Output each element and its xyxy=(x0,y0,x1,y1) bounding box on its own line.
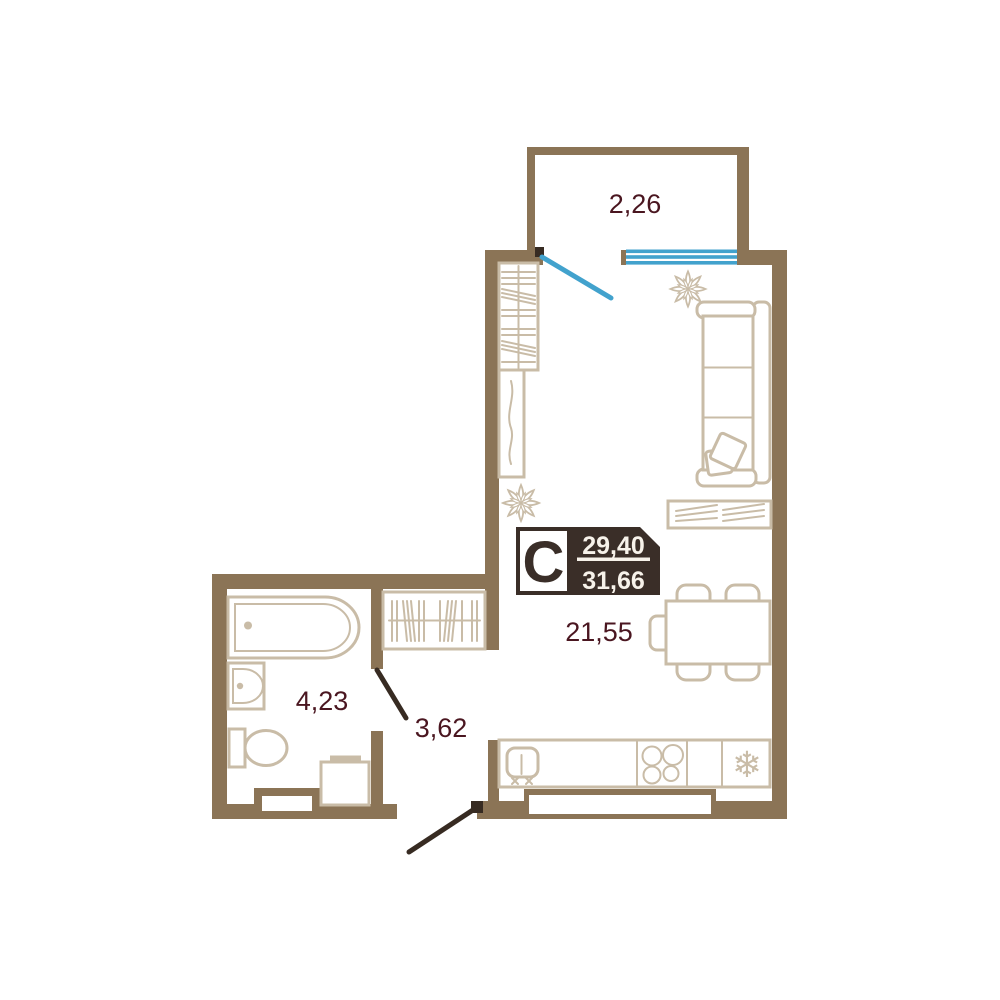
sofa xyxy=(697,302,770,486)
wardrobe-with-hangers xyxy=(499,263,538,370)
bathroom-hallway-divider-upper xyxy=(371,589,383,669)
bathroom-sink xyxy=(228,663,264,709)
living-room-area-label: 21,55 xyxy=(565,617,633,647)
bathroom-hallway-divider-lower xyxy=(371,731,383,804)
window-left-cap xyxy=(621,250,626,265)
dining-table xyxy=(666,601,770,664)
dining-set xyxy=(650,585,770,680)
unit-type-letter: С xyxy=(523,530,565,595)
bathroom-area-label: 4,23 xyxy=(296,686,349,716)
kitchen-counter-side-wall xyxy=(488,740,499,806)
toilet xyxy=(229,729,287,767)
living-area-value: 29,40 xyxy=(582,532,645,560)
floor-plan: ❄ С xyxy=(0,0,1000,1000)
kitchen-window xyxy=(529,795,711,814)
bathtub xyxy=(228,597,359,658)
bathtub-drain xyxy=(244,622,252,630)
kitchen-counter: ❄ xyxy=(499,740,770,787)
window-glazing-line xyxy=(626,255,737,259)
balcony-right-wall xyxy=(737,147,749,250)
washing-machine xyxy=(321,756,369,806)
window-glazing-line xyxy=(626,261,737,265)
snowflake-icon: ❄ xyxy=(732,745,762,786)
balcony-left-wall xyxy=(527,147,535,250)
living-room-left-wall xyxy=(485,250,499,650)
balcony-door-leaf xyxy=(542,257,611,298)
balcony-area-label: 2,26 xyxy=(609,189,662,219)
plant-icon xyxy=(503,485,539,521)
window-glazing-line xyxy=(626,250,737,254)
tv-stand xyxy=(668,501,771,528)
living-room-right-wall xyxy=(772,250,787,819)
toilet-tank xyxy=(229,729,245,767)
wardrobe-sliding-door xyxy=(499,370,524,477)
balcony-window xyxy=(626,249,737,265)
badge-divider xyxy=(577,558,650,562)
ventilation-duct-opening xyxy=(262,796,312,811)
hallway-area-label: 3,62 xyxy=(415,713,468,743)
entry-door-leaf xyxy=(409,808,476,852)
hallway-closet xyxy=(383,592,485,649)
balcony-top-wall xyxy=(527,147,749,155)
bathroom-door-leaf xyxy=(377,670,406,718)
bathroom-top-wall xyxy=(212,574,499,589)
total-area-value: 31,66 xyxy=(582,567,645,595)
unit-type-badge: С 29,40 31,66 xyxy=(516,527,660,595)
floor-plan-drawing: ❄ С xyxy=(0,0,1000,1000)
bathroom-left-wall xyxy=(212,574,227,819)
